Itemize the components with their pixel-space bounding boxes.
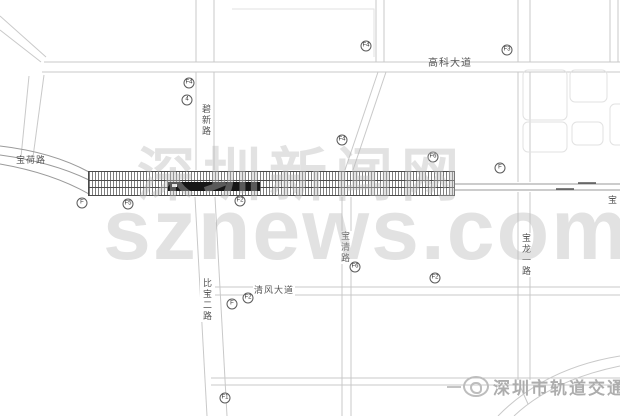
- marker-circle: F6: [350, 262, 361, 273]
- station-platform-band: [88, 171, 455, 196]
- marker-circle: F4: [184, 78, 195, 89]
- station-body: [168, 182, 260, 191]
- marker-circle: F1: [220, 393, 231, 404]
- marker-circle: F5: [123, 199, 134, 210]
- road-label-baohe-road: 宝荷路: [16, 153, 46, 166]
- road-label-bibao-2nd-road: 比宝二路: [200, 278, 215, 322]
- credit-badge: 深圳市轨道交通: [447, 374, 620, 399]
- marker-circle: F6: [428, 152, 439, 163]
- road-label-gaoke-avenue: 高科大道: [428, 54, 472, 69]
- marker-circle: F4: [361, 41, 372, 52]
- credit-dash: [447, 386, 461, 388]
- credit-text: 深圳市轨道交通: [493, 374, 620, 399]
- road-label-bixin-road: 碧新路: [200, 104, 213, 137]
- marker-circle: F3: [502, 45, 513, 56]
- marker-circle: F2: [243, 293, 254, 304]
- road-label-bao-edge: 宝: [608, 193, 618, 206]
- marker-circle: F: [77, 198, 88, 209]
- marker-circle: F2: [235, 196, 246, 207]
- road-label-baolong-1st-road: 宝龙一路: [519, 233, 534, 277]
- marker-circle: 4: [182, 95, 193, 106]
- rail-transit-logo-blob: [470, 382, 482, 394]
- station-body-notch: [172, 184, 177, 187]
- marker-circle: F: [227, 299, 238, 310]
- road-label-baoqing-road: 宝清路: [338, 231, 353, 264]
- marker-circle: F4: [337, 135, 348, 146]
- road-label-qingfeng-avenue: 清风大道: [253, 283, 295, 296]
- road-network-layer: [0, 0, 620, 416]
- rail-transit-logo-icon: [463, 376, 489, 397]
- metro-plan-map: 宝荷路 碧新路 高科大道 比宝二路 清风大道 宝清路 宝龙一路 宝 F F5 F…: [0, 0, 620, 416]
- marker-circle: F: [495, 163, 506, 174]
- marker-circle: F2: [430, 273, 441, 284]
